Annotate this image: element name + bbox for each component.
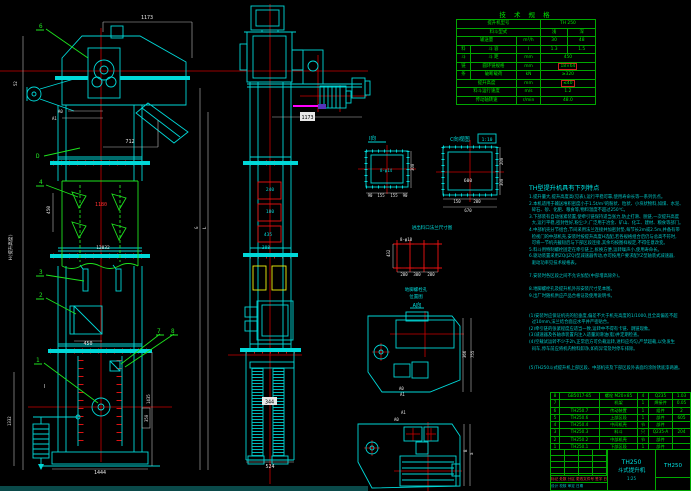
balloon-7: 7	[157, 328, 161, 335]
tech-row: 料斗运行速度m/s1.2	[457, 88, 595, 97]
balloon-3: 3	[39, 269, 43, 276]
view-c-150: 150	[453, 199, 461, 204]
cad-drawing-canvas: 1173 712 A0 A1 52 D 1180 450 12032 450 Ⅰ…	[0, 0, 691, 491]
tech-row: 条破断载荷kN≥320	[457, 71, 595, 80]
view-a-b4: 90	[403, 193, 408, 198]
product-model: TH250	[622, 459, 642, 466]
title-block-drawing-no: TH250	[656, 450, 690, 490]
view-a-b3: 155	[390, 193, 398, 198]
plan2-a0: A0	[394, 417, 399, 422]
grid-b3: 200	[427, 272, 435, 277]
dim-344: 344	[265, 400, 274, 406]
bom-row: 8GB5017-85螺栓 M20×854Q2351.03	[551, 393, 691, 400]
balloon-6: 6	[39, 23, 43, 30]
bom-row: 3TH250.3料斗只Q235-A204	[551, 429, 691, 436]
section-mark-i: Ⅰ	[44, 384, 45, 390]
takeup-screw-hatch	[258, 368, 279, 456]
tech-row: 斗斗 距mm450	[457, 54, 595, 63]
view-c-200: 200	[473, 199, 481, 204]
drawing-number: TH250	[656, 463, 690, 469]
title-block-product: TH250 斗式提升机 1:25	[608, 450, 656, 490]
balloon-2: 2	[39, 292, 43, 299]
view-c-r300: 300	[499, 178, 504, 186]
dim-435: 435	[264, 232, 272, 238]
view-a-hole: 8-φ14	[380, 168, 393, 173]
bom-table: 8GB5017-85螺栓 M20×854Q2351.03 7机架1焊接件0.05…	[550, 392, 691, 449]
title-block: 标记 处数 分区 更改文件号 签字 日期 设计 校核 审定 日期 TH250 斗…	[550, 449, 691, 491]
tech-table-title: 技 术 规 格	[456, 9, 596, 19]
magenta-platform-line	[293, 104, 326, 109]
tech-row: 提升机型号TH 250	[457, 20, 595, 29]
dim-feed-450: 450	[83, 341, 92, 347]
notes-block: TH型提升机具有下列特点 1.提升量大,提升高度高(见表),运行平稳可靠,使用寿…	[529, 183, 691, 395]
view-a-b2: 155	[377, 193, 385, 198]
plan1-755: 755	[470, 350, 475, 358]
dim-524: 524	[265, 464, 274, 470]
mid-section-green	[34, 29, 178, 403]
view-a-300: 300	[410, 163, 415, 171]
dim-head-width: 712	[125, 139, 134, 145]
flange-detail-views	[366, 134, 497, 308]
dim-a1: A1	[52, 116, 57, 121]
dim-240: 240	[266, 187, 274, 193]
dim-base-width: 1444	[94, 470, 106, 476]
dim-388: 388	[262, 245, 270, 251]
dim-a0: A0	[58, 109, 63, 114]
view-c-r200: 200	[499, 157, 504, 165]
bom-row: 6TH250.7传动装置1组件2	[551, 408, 691, 415]
grid-432: 432	[386, 249, 391, 257]
dim-1435: 1435	[146, 394, 151, 404]
plan2-a1: A1	[401, 410, 406, 415]
tech-row: 料斗 容l1.31.5	[457, 46, 595, 55]
dim-l: L	[202, 226, 207, 229]
balloon-1: 1	[36, 357, 40, 364]
product-name: 斗式提升机	[618, 466, 646, 474]
revision-grid	[551, 450, 607, 475]
plan1-a1: A1	[400, 392, 405, 397]
balloon-4: 4	[39, 179, 43, 186]
tech-row: 链圆环链规格mm18×64	[457, 63, 595, 72]
bom-row: 2TH250.2中部机壳节部件	[551, 437, 691, 444]
tech-row: 输送量m³/h3048	[457, 37, 595, 46]
plan-views	[358, 312, 460, 488]
dim-180: 180	[266, 209, 274, 215]
dim-1332: 1332	[7, 416, 12, 426]
notes-title: TH型提升机具有下列特点	[529, 183, 691, 192]
tech-row: 传动轴转速r/min48.0	[457, 97, 595, 105]
dim-total-height: H(提升高度)	[7, 234, 14, 260]
tech-table: 提升机型号TH 250 料斗型式浅深 输送量m³/h3048 料斗 容l1.31…	[456, 19, 596, 105]
caption-flange-views: 进出料口法兰尺寸图	[412, 224, 453, 231]
dim-top-width: 1173	[141, 15, 153, 21]
caption-anchor-line2: 位置图	[409, 293, 423, 300]
plan1-366: 366	[462, 350, 467, 358]
caption-anchor-line1: 地脚螺栓孔	[405, 286, 428, 293]
view-a-b1: 90	[368, 193, 373, 198]
view-c-scale: 1:10	[482, 137, 493, 143]
dim-350: 350	[144, 414, 149, 422]
view-c-600: 600	[464, 178, 472, 184]
a-view-label: A向	[413, 301, 422, 309]
plan1-a0: A0	[399, 386, 404, 391]
view-c-670: 670	[464, 208, 472, 213]
grid-b2: 300	[413, 272, 421, 277]
left-view-solid-fills	[38, 76, 190, 470]
bom-row: 4TH250.4中间机壳节部件	[551, 422, 691, 429]
bom-row: 5TH250.6上部区段1部件605	[551, 415, 691, 422]
signature-labels: 设计 校核 审定 日期	[551, 482, 607, 490]
dim-chain-pitch: 1180	[95, 202, 107, 208]
grid-hole-label: 8-φ18	[400, 237, 413, 242]
ground-strip	[0, 486, 368, 491]
dim-12032: 12032	[96, 245, 110, 251]
view-c-label: C向视图	[450, 135, 470, 143]
revision-labels: 标记 处数 分区 更改文件号 签字 日期	[551, 475, 607, 482]
dim-52: 52	[13, 81, 18, 86]
view-a-label: Ⅰ向	[369, 134, 376, 142]
drawing-scale: 1:25	[627, 476, 636, 481]
tech-row: 提升高度mm≤40	[457, 80, 595, 89]
grid-b1: 200	[400, 272, 408, 277]
flange-bolt-ticks	[50, 163, 296, 445]
dim-g: G	[194, 226, 199, 229]
dim-450-vertical: 450	[46, 206, 52, 214]
tech-row: 料斗型式浅深	[457, 29, 595, 38]
letter-d: D	[36, 153, 40, 160]
dim-drive-overhang: 1173	[301, 115, 313, 121]
balloon-8: 8	[171, 328, 175, 335]
title-block-revision-area: 标记 处数 分区 更改文件号 签字 日期 设计 校核 审定 日期	[551, 450, 608, 490]
bom-row: 7机架1焊接件0.05	[551, 400, 691, 407]
